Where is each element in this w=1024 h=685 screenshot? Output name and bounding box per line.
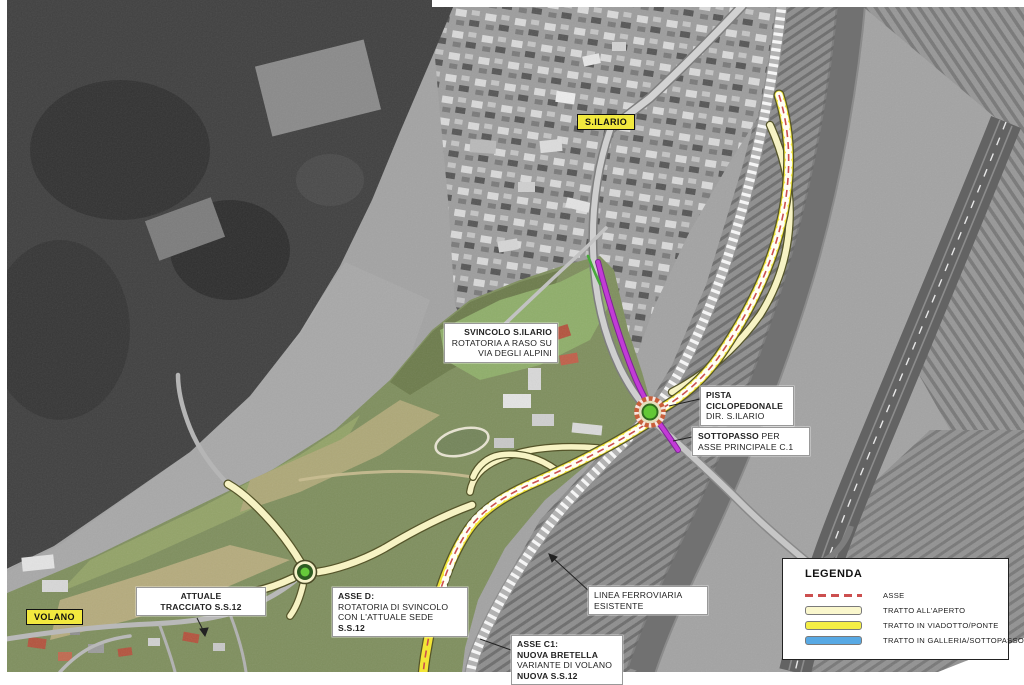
- roundabout-silario: [637, 399, 664, 426]
- legend-label: TRATTO IN VIADOTTO/PONTE: [883, 621, 999, 630]
- callout-line: TRACCIATO S.S.12: [142, 602, 260, 613]
- legend-row-aperto: TRATTO ALL'APERTO: [805, 603, 1008, 618]
- callout-line: VIA DEGLI ALPINI: [450, 348, 552, 359]
- callout-text: CON L'ATTUALE SEDE: [338, 612, 433, 622]
- callout-asse-c1: ASSE C1: NUOVA BRETELLA VARIANTE DI VOLA…: [511, 635, 623, 685]
- callout-line: NUOVA S.S.12: [517, 671, 617, 682]
- callout-line: NUOVA BRETELLA: [517, 650, 617, 661]
- callout-line: DIR. S.ILARIO: [706, 411, 788, 422]
- callout-line: LINEA FERROVIARIA: [594, 590, 702, 601]
- legend-swatch-viaduct: [805, 621, 862, 630]
- callout-bold-text: SOTTOPASSO: [698, 431, 759, 441]
- legend: LEGENDA ASSE TRATTO ALL'APERTO TRATTO IN…: [782, 558, 1009, 660]
- callout-line: SOTTOPASSO PER: [698, 431, 804, 442]
- callout-line: ESISTENTE: [594, 601, 702, 612]
- project-map: S.ILARIO VOLANO SVINCOLO S.ILARIO ROTATO…: [0, 0, 1024, 672]
- roundabout-asse-d: [294, 561, 317, 584]
- legend-swatch-open-stretch: [805, 606, 862, 615]
- callout-pista-ciclopedonale: PISTA CICLOPEDONALE DIR. S.ILARIO: [700, 386, 794, 426]
- callout-line: ASSE C1:: [517, 639, 617, 650]
- callout-asse-d: ASSE D: ROTATORIA DI SVINCOLO CON L'ATTU…: [332, 587, 468, 637]
- callout-line: ASSE PRINCIPALE C.1: [698, 442, 804, 453]
- legend-row-asse: ASSE: [805, 588, 1008, 603]
- legend-swatch-underpass: [805, 636, 862, 645]
- legend-swatch-axis-dashed-line: [805, 594, 862, 597]
- callout-line: ROTATORIA DI SVINCOLO: [338, 602, 462, 613]
- callout-line: ROTATORIA A RASO SU: [450, 338, 552, 349]
- place-tag-volano: VOLANO: [26, 609, 83, 625]
- legend-row-viadotto: TRATTO IN VIADOTTO/PONTE: [805, 618, 1008, 633]
- callout-line: ATTUALE: [142, 591, 260, 602]
- callout-line: ASSE D:: [338, 591, 462, 602]
- callout-text: PER: [759, 431, 780, 441]
- callout-attuale-tracciato: ATTUALE TRACCIATO S.S.12: [136, 587, 266, 616]
- legend-label: ASSE: [883, 591, 904, 600]
- legend-label: TRATTO IN GALLERIA/SOTTOPASSO: [883, 636, 1024, 645]
- legend-title: LEGENDA: [805, 568, 1008, 580]
- callout-linea-ferroviaria: LINEA FERROVIARIA ESISTENTE: [588, 586, 708, 615]
- callout-line: PISTA: [706, 390, 788, 401]
- place-tag-silario: S.ILARIO: [577, 114, 635, 130]
- callout-sottopasso: SOTTOPASSO PER ASSE PRINCIPALE C.1: [692, 427, 810, 456]
- callout-bold-text: S.S.12: [338, 623, 365, 633]
- callout-line: SVINCOLO S.ILARIO: [450, 327, 552, 338]
- callout-line: CICLOPEDONALE: [706, 401, 788, 412]
- callout-svincolo-silario: SVINCOLO S.ILARIO ROTATORIA A RASO SU VI…: [444, 323, 558, 363]
- legend-label: TRATTO ALL'APERTO: [883, 606, 965, 615]
- callout-line: VARIANTE DI VOLANO: [517, 660, 617, 671]
- legend-row-galleria: TRATTO IN GALLERIA/SOTTOPASSO: [805, 633, 1008, 648]
- callout-line: CON L'ATTUALE SEDE S.S.12: [338, 612, 462, 633]
